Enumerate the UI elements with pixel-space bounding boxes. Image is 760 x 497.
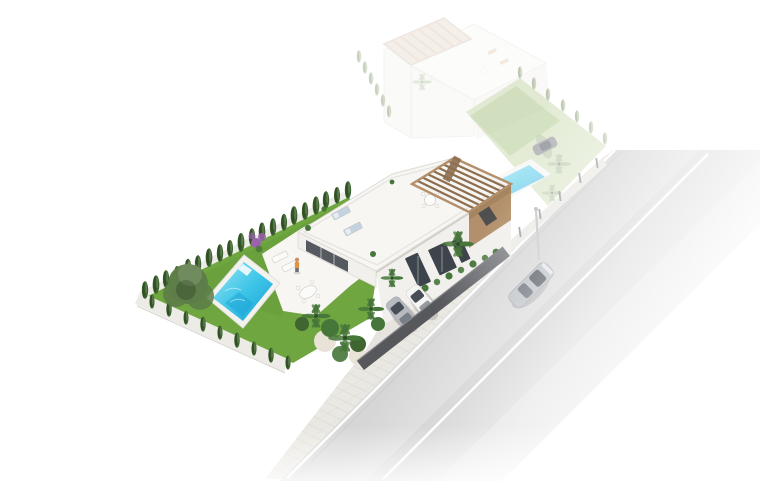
person-head [295,258,299,262]
street-lamp-head [534,207,538,211]
villa-aerial-render [40,16,760,481]
person-legs [295,268,299,273]
person-body [295,262,299,269]
architectural-render [40,16,760,481]
